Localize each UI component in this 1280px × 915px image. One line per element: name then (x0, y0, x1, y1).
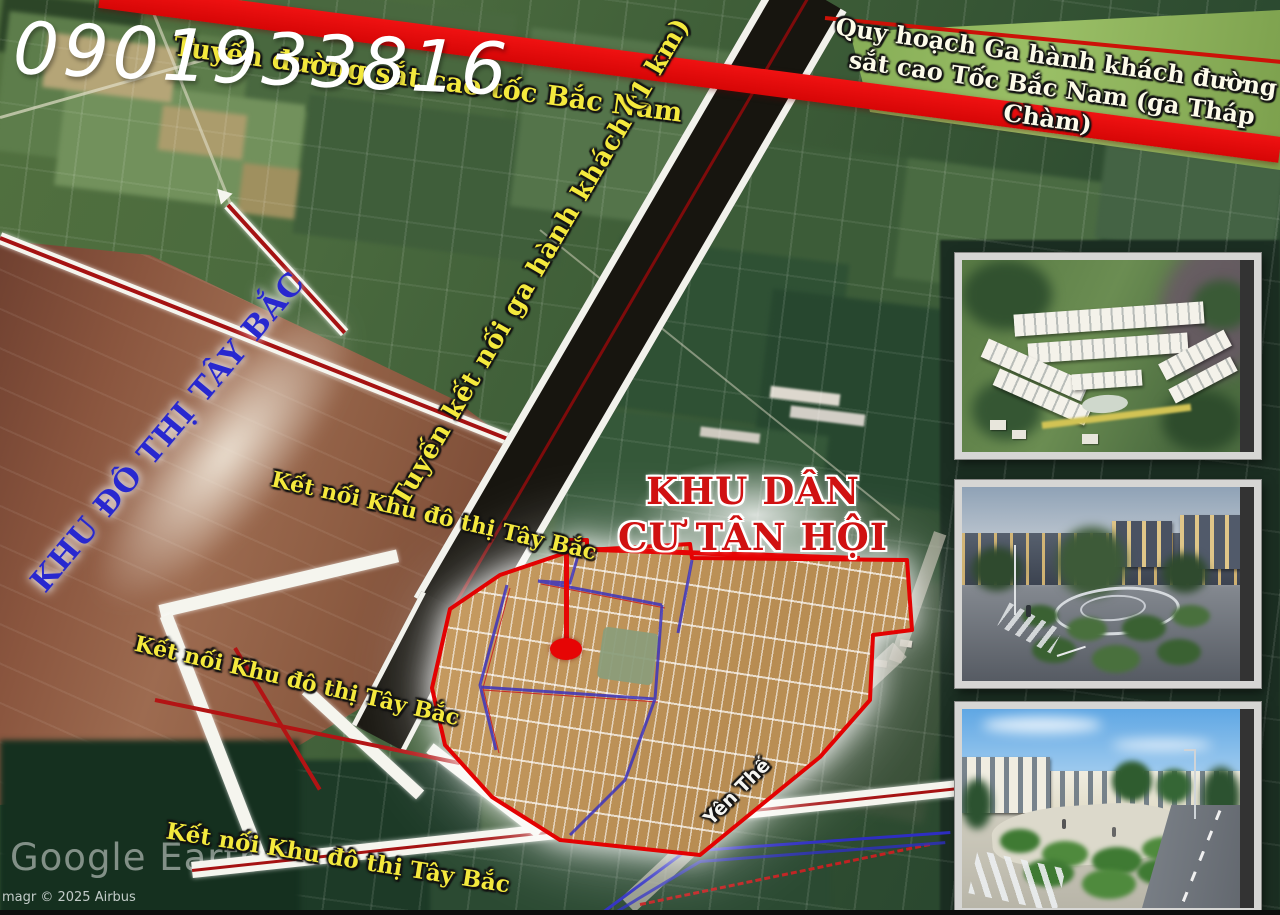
rowhouse-block (1072, 370, 1143, 391)
bottom-edge-bar (0, 910, 1280, 915)
plot-roads-and-boundary (420, 535, 940, 865)
tanhoi-district-label: KHU DÂN CƯ TÂN HỘI (618, 468, 888, 561)
street-lamp (1014, 545, 1016, 615)
bush (1172, 605, 1210, 627)
imagery-copyright: magr © 2025 Airbus (2, 890, 136, 905)
bush (1122, 615, 1166, 641)
render-image (962, 709, 1240, 908)
rowhouse-block (1027, 332, 1188, 363)
render-image (962, 260, 1240, 452)
render-image (962, 487, 1240, 681)
tree (1162, 553, 1208, 593)
street-lamp (1194, 749, 1196, 819)
bush (1092, 645, 1140, 673)
palm-tree (1112, 761, 1152, 801)
tree (962, 779, 992, 829)
inset-aerial-masterplan-render (955, 253, 1261, 459)
pedestrian (1026, 605, 1031, 617)
village-house (1082, 434, 1098, 444)
location-pin-icon (550, 638, 582, 660)
cloud (1112, 739, 1212, 751)
inset-day-streetscape-render (955, 702, 1261, 915)
cloud (982, 717, 1102, 733)
pedestrian (1112, 827, 1116, 837)
street-lamp-arm (1184, 749, 1196, 751)
village-house (1012, 430, 1026, 439)
pedestrian (1062, 819, 1066, 829)
inset-dusk-park-render (955, 480, 1261, 688)
tan-hoi-plot (420, 535, 940, 865)
promo-map-canvas: Google Earth (0, 0, 1280, 915)
bush (1000, 829, 1040, 853)
village-house (990, 420, 1006, 430)
palm-tree (1157, 769, 1191, 803)
bush (1157, 639, 1201, 665)
bush (1082, 869, 1136, 899)
bush (1067, 617, 1107, 641)
